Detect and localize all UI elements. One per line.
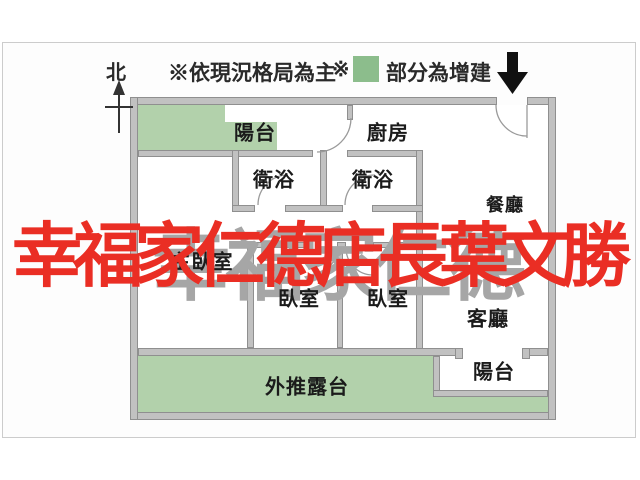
wall-slider-stub-right [522, 348, 530, 359]
room-label-terrace: 外推露台 [265, 371, 349, 400]
addition-strip-under-balcony [433, 397, 548, 412]
north-label: 北 [106, 56, 126, 85]
legend-note-addition: 部分為增建 [386, 57, 491, 87]
legend-note-main: ※依現況格局為主 [168, 57, 336, 87]
wall-balcony-bottom-bottom [433, 390, 548, 397]
wall-balcony-kitchen-stub [347, 105, 353, 120]
red-watermark-text: 幸福家仁德店長葉文勝 [12, 200, 622, 301]
wall-kitchen-bottom [347, 150, 423, 157]
legend-note-prefix: ※ [332, 57, 350, 82]
room-label-balcony-bottom: 陽台 [473, 356, 515, 385]
addition-color-swatch [353, 56, 379, 82]
wall-slider-stub-left [455, 348, 463, 359]
room-label-kitchen: 廚房 [367, 117, 409, 146]
wall-bottom-row-left [138, 348, 463, 356]
room-label-bath-1: 衛浴 [253, 164, 295, 193]
room-label-living: 客廳 [467, 303, 509, 332]
outer-wall-bottom [130, 412, 556, 420]
room-label-bath-2: 衛浴 [352, 164, 394, 193]
room-label-balcony-top: 陽台 [234, 117, 276, 146]
outer-wall-top-left [130, 97, 497, 105]
wall-balcony-bottom [138, 150, 313, 157]
floorplan-screenshot: 北 ※依現況格局為主 ※ 部分為增建 [0, 0, 640, 480]
